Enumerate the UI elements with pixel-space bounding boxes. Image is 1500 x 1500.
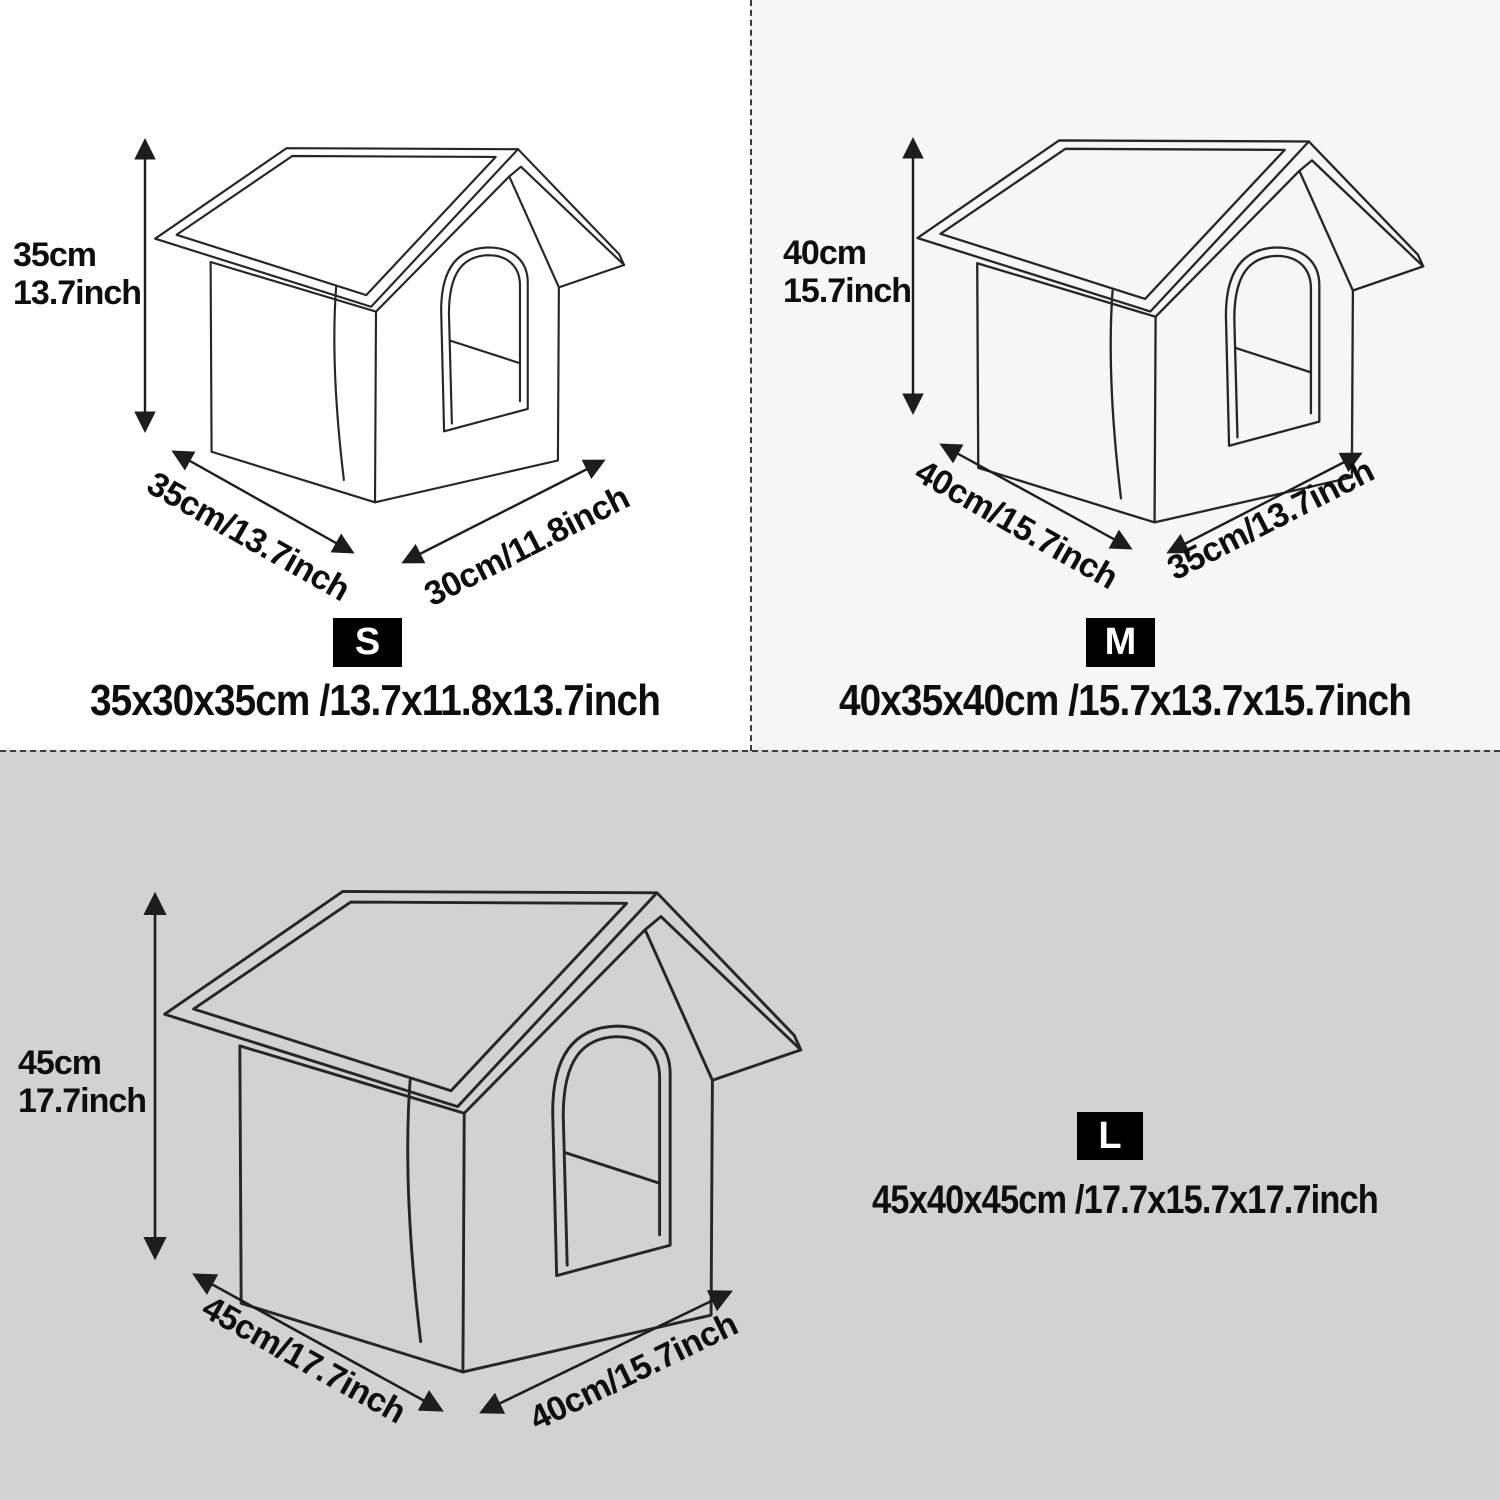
size-badge-l: L — [1077, 1112, 1143, 1160]
horizontal-dashed-divider — [0, 750, 1500, 752]
dimensions-text-m: 40x35x40cm /15.7x13.7x15.7inch — [839, 676, 1411, 726]
size-panel-m: 40cm 15.7inch 40cm/15.7inch 35cm/13.7inc… — [750, 0, 1500, 750]
height-cm: 35cm — [13, 236, 141, 274]
height-inch: 17.7inch — [18, 1082, 146, 1120]
dimensions-text-s: 35x30x35cm /13.7x11.8x13.7inch — [90, 676, 660, 726]
height-inch: 13.7inch — [13, 274, 141, 312]
pet-house-drawing-s — [150, 120, 637, 514]
size-chart: 35cm 13.7inch 35cm/13.7inch 30cm/11.8inc… — [0, 0, 1500, 1500]
size-badge-m: M — [1086, 618, 1155, 667]
height-label: 35cm 13.7inch — [13, 236, 141, 312]
dimensions-text-l: 45x40x45cm /17.7x15.7x17.7inch — [872, 1178, 1378, 1223]
height-inch: 15.7inch — [783, 272, 911, 310]
height-cm: 45cm — [18, 1044, 146, 1082]
height-cm: 40cm — [783, 234, 911, 272]
vertical-dashed-divider — [750, 0, 752, 751]
height-label: 45cm 17.7inch — [18, 1044, 146, 1120]
height-label: 40cm 15.7inch — [783, 234, 911, 310]
size-panel-l: 45cm 17.7inch 45cm/17.7inch 40cm/15.7inc… — [0, 750, 1500, 1500]
size-panel-s: 35cm 13.7inch 35cm/13.7inch 30cm/11.8inc… — [0, 0, 750, 750]
size-badge-s: S — [333, 618, 402, 667]
